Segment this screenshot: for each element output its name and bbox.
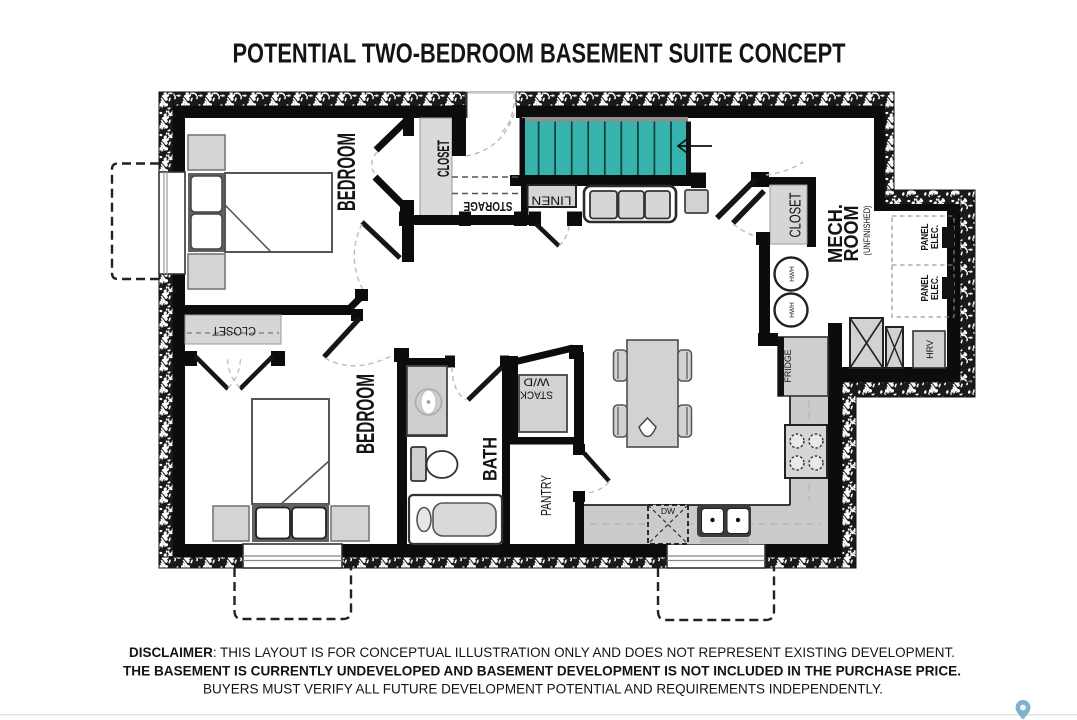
svg-text:LINEN: LINEN	[532, 194, 572, 208]
svg-text:ELEC.: ELEC.	[930, 225, 941, 249]
svg-text:FRIDGE: FRIDGE	[783, 350, 794, 383]
svg-text:W/D: W/D	[523, 376, 549, 388]
svg-text:CLOSET: CLOSET	[434, 140, 453, 177]
svg-text:BEDROOM: BEDROOM	[352, 374, 380, 454]
svg-text:THE BASEMENT IS CURRENTLY UNDE: THE BASEMENT IS CURRENTLY UNDEVELOPED AN…	[123, 662, 961, 678]
svg-text:BATH: BATH	[480, 437, 502, 481]
svg-text:PANTRY: PANTRY	[539, 475, 555, 516]
svg-text:DW: DW	[661, 506, 675, 516]
svg-text:ROOM: ROOM	[841, 206, 863, 262]
svg-text:ELEC.: ELEC.	[930, 276, 941, 300]
svg-text:BEDROOM: BEDROOM	[333, 133, 361, 211]
svg-text:POTENTIAL TWO-BEDROOM BASEMENT: POTENTIAL TWO-BEDROOM BASEMENT SUITE CON…	[233, 37, 846, 68]
svg-text:DISCLAIMER: THIS LAYOUT IS FOR: DISCLAIMER: THIS LAYOUT IS FOR CONCEPTUA…	[129, 644, 955, 660]
svg-text:HWH: HWH	[789, 302, 796, 318]
svg-text:HWH: HWH	[789, 266, 796, 282]
svg-text:CLOSET: CLOSET	[212, 324, 256, 336]
svg-text:STACK: STACK	[519, 389, 553, 401]
svg-text:HRV: HRV	[925, 340, 935, 359]
svg-text:CLOSET: CLOSET	[788, 192, 805, 237]
svg-text:(UNFINISHED): (UNFINISHED)	[862, 206, 872, 256]
svg-text:BUYERS MUST VERIFY ALL FUTURE: BUYERS MUST VERIFY ALL FUTURE DEVELOPMEN…	[203, 681, 883, 697]
